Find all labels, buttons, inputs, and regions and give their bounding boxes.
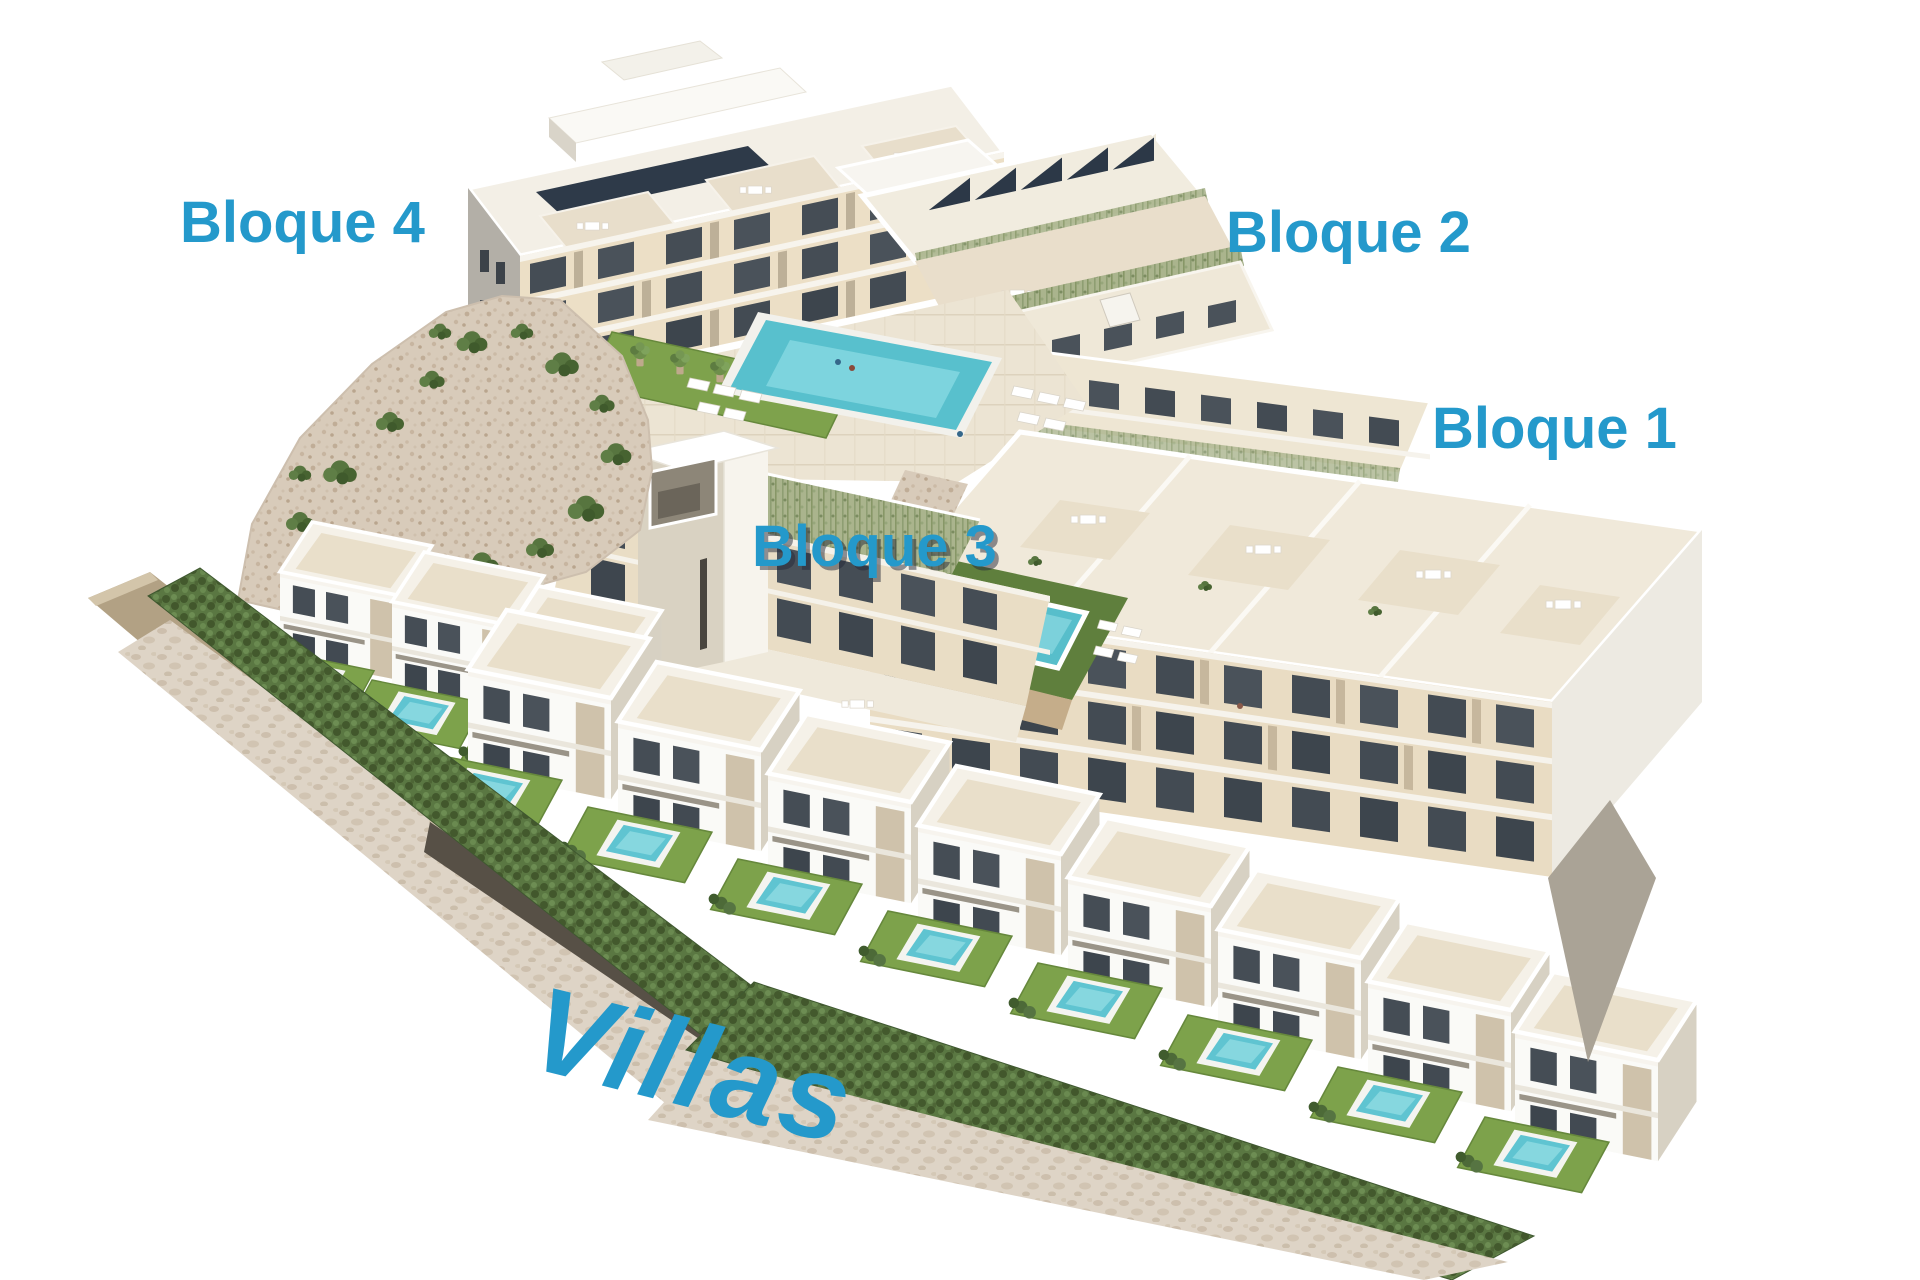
- label-bloque-3: Bloque 3: [752, 518, 997, 576]
- label-bloque-2: Bloque 2: [1226, 204, 1471, 262]
- label-bloque-1: Bloque 1: [1432, 400, 1677, 458]
- label-bloque-4: Bloque 4: [180, 194, 425, 252]
- development-aerial-render: Bloque 4 Bloque 2 Bloque 1 Bloque 3 Vill…: [0, 0, 1920, 1280]
